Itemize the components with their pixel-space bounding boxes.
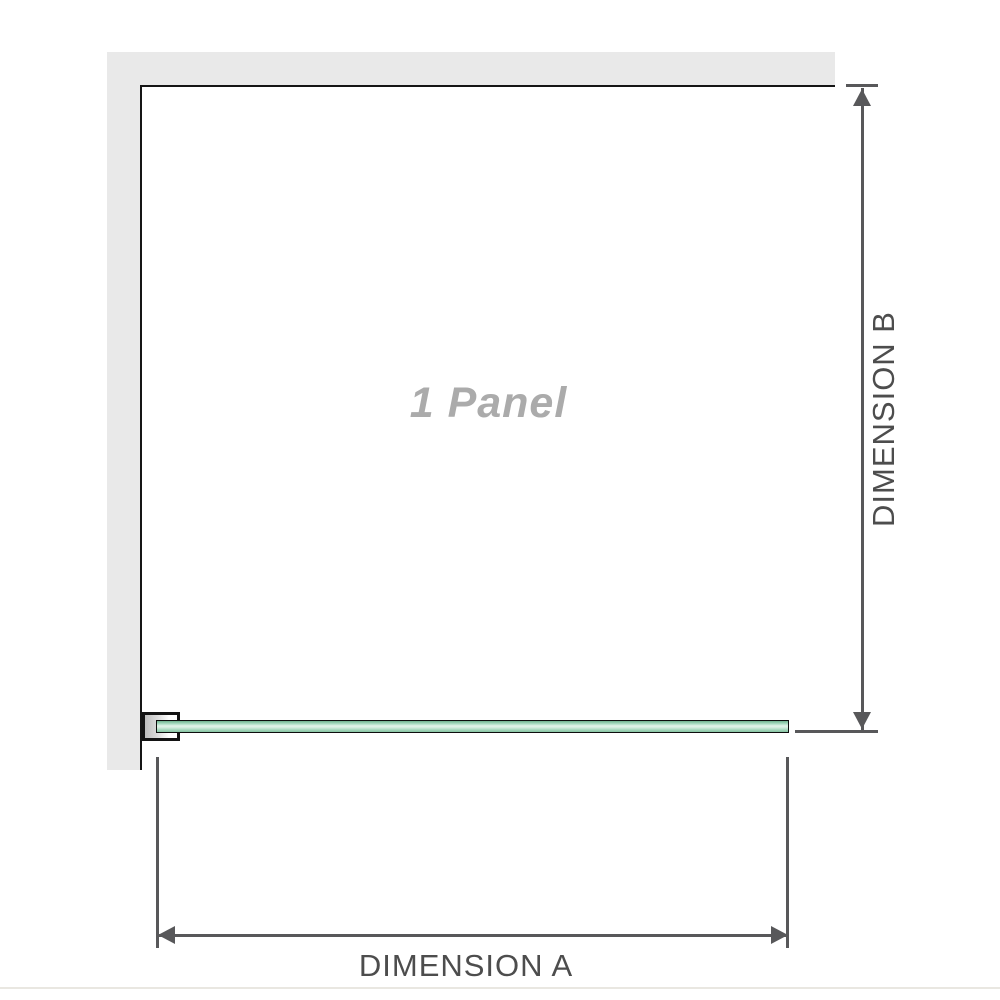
arrow-left-icon — [158, 926, 175, 944]
panel-outline: 1 Panel — [140, 85, 835, 770]
dimension-b-label: DIMENSION B — [866, 311, 902, 527]
diagram-canvas: 1 Panel DIMENSION B DIMENSION A — [0, 0, 1000, 1000]
wall-top-segment — [107, 52, 835, 85]
panel-label: 1 Panel — [142, 379, 835, 428]
arrow-right-icon — [771, 926, 788, 944]
dimension-a-label: DIMENSION A — [359, 948, 573, 984]
dimension-a-line — [158, 934, 788, 937]
wall-left-segment — [107, 52, 140, 770]
arrow-up-icon — [853, 89, 871, 106]
page-divider — [0, 987, 1000, 989]
dimension-b-bottom-tick — [795, 730, 878, 733]
dimension-a-right-extension — [786, 757, 789, 948]
arrow-down-icon — [853, 712, 871, 729]
dimension-b-top-tick — [846, 84, 878, 87]
glass-panel — [156, 720, 789, 733]
dimension-a-left-extension — [156, 757, 159, 948]
dimension-b-line — [861, 88, 864, 730]
